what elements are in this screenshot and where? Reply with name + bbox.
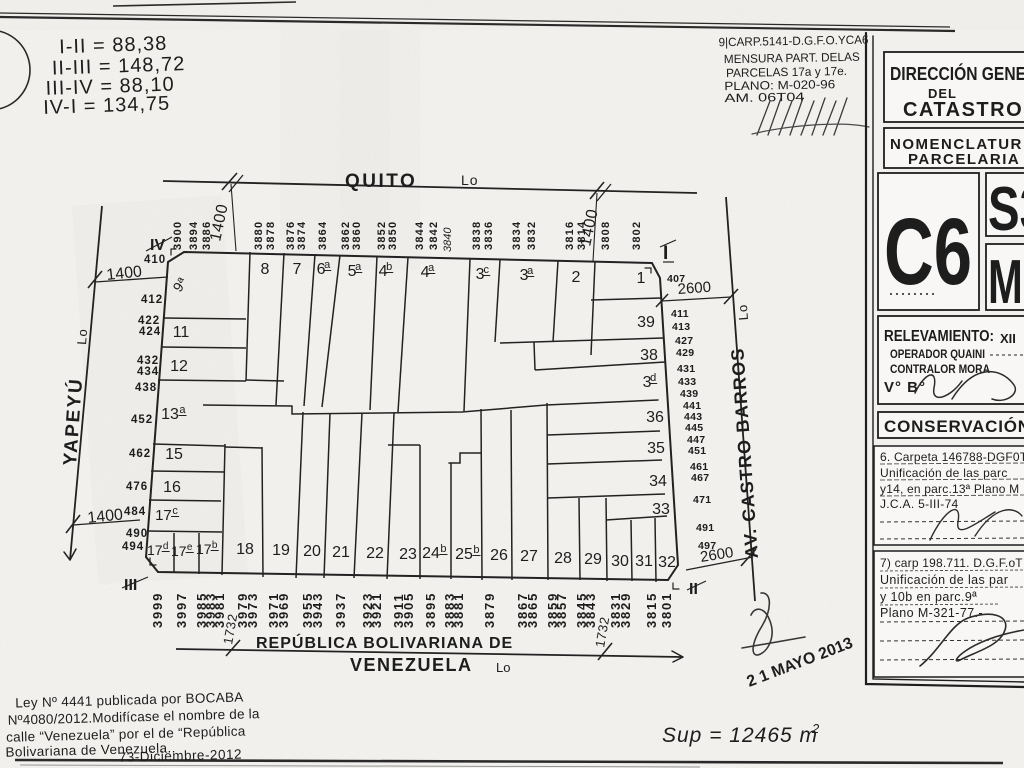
svg-text:484: 484	[124, 506, 146, 518]
svg-text:412: 412	[141, 294, 163, 306]
svg-text:433: 433	[678, 376, 696, 388]
svg-text:452: 452	[131, 414, 153, 426]
svg-text:19: 19	[272, 542, 290, 559]
svg-text:a: a	[355, 261, 362, 273]
svg-text:y 10b en parc.9ª: y 10b en parc.9ª	[880, 590, 977, 604]
svg-text:a: a	[324, 259, 331, 271]
svg-text:20: 20	[303, 543, 321, 560]
svg-text:3838: 3838	[471, 221, 483, 250]
svg-text:413: 413	[672, 321, 690, 333]
svg-text:3840: 3840	[442, 227, 454, 252]
svg-text:34: 34	[649, 473, 667, 490]
svg-text:32: 32	[658, 554, 676, 571]
svg-text:3832: 3832	[526, 221, 538, 250]
svg-text:11: 11	[173, 324, 190, 341]
svg-text:476: 476	[126, 481, 148, 493]
svg-text:23: 23	[399, 546, 417, 563]
svg-text:3808: 3808	[600, 221, 612, 250]
svg-text:9|CARP.5141-D.G.F.O.YCA6: 9|CARP.5141-D.G.F.O.YCA6	[718, 33, 869, 50]
svg-text:3937: 3937	[333, 592, 348, 628]
svg-text:3816: 3816	[564, 221, 576, 250]
svg-text:410: 410	[144, 254, 166, 266]
svg-text:C6: C6	[884, 199, 972, 305]
svg-text:3802: 3802	[631, 221, 643, 250]
svg-text:CATASTRO: CATASTRO	[903, 99, 1023, 121]
svg-text:3865: 3865	[525, 592, 540, 628]
svg-text:3895: 3895	[423, 592, 438, 628]
svg-text:424: 424	[139, 326, 161, 338]
svg-text:3834: 3834	[511, 221, 523, 250]
svg-text:17: 17	[147, 542, 163, 558]
svg-text:PARCELARIA: PARCELARIA	[908, 151, 1020, 168]
svg-text:494: 494	[122, 541, 144, 553]
svg-text:OPERADOR QUAINI: OPERADOR QUAINI	[890, 347, 985, 361]
svg-text:c: c	[172, 505, 178, 517]
svg-text:a: a	[179, 404, 186, 416]
svg-text:17: 17	[196, 541, 212, 557]
svg-text:30: 30	[611, 553, 629, 570]
svg-text:38: 38	[640, 347, 658, 364]
svg-text:3943: 3943	[310, 592, 325, 628]
svg-text:3836: 3836	[483, 221, 495, 250]
svg-text:3874: 3874	[296, 221, 308, 250]
svg-text:3999: 3999	[150, 592, 165, 628]
svg-text:451: 451	[688, 445, 706, 457]
svg-text:3969: 3969	[276, 592, 291, 628]
svg-text:Unificación de las par: Unificación de las par	[880, 573, 1008, 587]
svg-text:b: b	[386, 261, 392, 273]
svg-text:6. Carpeta 146788-DGF0T: 6. Carpeta 146788-DGF0T	[880, 450, 1024, 464]
svg-text:XII: XII	[1000, 331, 1016, 346]
svg-text:III: III	[124, 577, 137, 594]
svg-text:497: 497	[698, 540, 716, 552]
svg-text:407: 407	[667, 273, 685, 285]
svg-text:467: 467	[691, 472, 709, 484]
svg-text:3801: 3801	[659, 592, 674, 628]
svg-text:25: 25	[455, 546, 473, 563]
svg-text:429: 429	[676, 347, 694, 359]
svg-text:CONSERVACIÓN: CONSERVACIÓN	[884, 417, 1024, 436]
svg-text:a: a	[527, 265, 534, 277]
svg-text:3997: 3997	[174, 592, 189, 628]
svg-text:438: 438	[135, 382, 157, 394]
svg-text:36: 36	[646, 409, 664, 426]
svg-text:Lo: Lo	[461, 172, 479, 188]
svg-text:AM. 06T04: AM. 06T04	[724, 90, 805, 105]
svg-text:Sup = 12465 m: Sup = 12465 m	[662, 724, 818, 747]
svg-text:434: 434	[137, 366, 159, 378]
svg-text:427: 427	[675, 335, 693, 347]
svg-text:21: 21	[332, 544, 350, 561]
svg-text:Lo: Lo	[735, 303, 751, 320]
svg-text:b: b	[440, 543, 446, 555]
svg-text:29: 29	[584, 551, 602, 568]
svg-text:3829: 3829	[618, 592, 633, 628]
svg-text:12: 12	[170, 358, 188, 375]
svg-text:3973: 3973	[245, 592, 260, 628]
svg-text:3886: 3886	[201, 221, 213, 250]
svg-text:Lo: Lo	[496, 660, 510, 675]
svg-text:V° B°: V° B°	[884, 379, 926, 396]
svg-text:16: 16	[163, 479, 181, 496]
svg-text:S3: S3	[988, 175, 1024, 244]
svg-text:VENEZUELA: VENEZUELA	[350, 655, 473, 675]
svg-text:IV-I = 134,75: IV-I = 134,75	[43, 93, 171, 119]
svg-text:I: I	[663, 243, 668, 264]
svg-text:J.C.A. 5-III-74: J.C.A. 5-III-74	[880, 497, 959, 511]
svg-text:22: 22	[366, 545, 384, 562]
svg-text:RELEVAMIENTO:: RELEVAMIENTO:	[884, 328, 994, 345]
svg-text:3860: 3860	[351, 221, 363, 250]
svg-text:II: II	[689, 581, 698, 598]
svg-text:27: 27	[520, 548, 538, 565]
svg-text:490: 490	[126, 528, 148, 540]
svg-text:b: b	[473, 544, 479, 556]
svg-text:REPÚBLICA BOLIVARIANA DE: REPÚBLICA BOLIVARIANA DE	[256, 633, 513, 652]
svg-text:d: d	[163, 541, 169, 552]
svg-text:3814: 3814	[576, 221, 588, 250]
svg-text:17: 17	[171, 543, 187, 559]
svg-text:QUITO: QUITO	[345, 171, 417, 192]
svg-text:7: 7	[293, 261, 302, 278]
svg-text:d: d	[650, 372, 656, 384]
svg-text:Lo: Lo	[74, 328, 90, 345]
svg-text:3857: 3857	[554, 592, 569, 628]
svg-text:26: 26	[490, 547, 508, 564]
svg-text:39: 39	[637, 314, 655, 331]
svg-text:3981: 3981	[212, 592, 227, 628]
svg-text:462: 462	[129, 448, 151, 460]
svg-text:2: 2	[811, 721, 820, 736]
svg-text:3850: 3850	[387, 221, 399, 250]
svg-text:3921: 3921	[369, 592, 384, 628]
svg-text:33: 33	[652, 501, 670, 518]
svg-text:y14, en parc.13ª Plano M: y14, en parc.13ª Plano M	[880, 482, 1019, 496]
svg-text:3905: 3905	[401, 592, 416, 628]
svg-text:3864: 3864	[317, 221, 329, 250]
svg-text:8: 8	[261, 261, 270, 278]
svg-text:3881: 3881	[451, 592, 466, 628]
svg-text:445: 445	[685, 422, 703, 434]
svg-text:439: 439	[680, 388, 698, 400]
svg-text:471: 471	[693, 494, 711, 506]
svg-text:b: b	[212, 540, 218, 551]
svg-text:411: 411	[671, 308, 689, 320]
svg-text:3878: 3878	[265, 221, 277, 250]
svg-text:7) carp 198.711. D.G.F.oT 7: 7) carp 198.711. D.G.F.oT 7	[880, 556, 1024, 570]
svg-text:IV: IV	[150, 237, 165, 254]
svg-text:Unificación de las parc: Unificación de las parc	[880, 466, 1008, 480]
svg-text:1: 1	[637, 270, 646, 287]
svg-text:31: 31	[635, 553, 653, 570]
svg-text:3894: 3894	[188, 221, 200, 250]
svg-text:431: 431	[677, 363, 695, 375]
svg-text:3815: 3815	[644, 592, 659, 628]
svg-text:e: e	[187, 542, 193, 553]
svg-text:15: 15	[165, 446, 183, 463]
svg-text:24: 24	[422, 545, 440, 562]
svg-text:13: 13	[161, 406, 179, 423]
svg-text:CONTRALOR MORA: CONTRALOR MORA	[890, 362, 990, 376]
svg-text:3844: 3844	[414, 221, 426, 250]
svg-text:DIRECCIÓN GENE: DIRECCIÓN GENE	[890, 63, 1024, 84]
svg-text:17: 17	[155, 507, 172, 524]
svg-text:3842: 3842	[428, 221, 440, 250]
svg-text:28: 28	[554, 550, 572, 567]
svg-text:3900: 3900	[172, 221, 184, 250]
svg-text:a: a	[428, 262, 435, 274]
svg-text:3879: 3879	[482, 592, 497, 628]
svg-text:18: 18	[236, 541, 254, 558]
svg-text:c: c	[483, 264, 489, 276]
svg-text:3880: 3880	[253, 221, 265, 250]
svg-text:491: 491	[696, 522, 714, 534]
svg-text:2: 2	[572, 269, 581, 286]
svg-text:M9: M9	[988, 248, 1024, 317]
svg-text:35: 35	[647, 440, 665, 457]
svg-text:3843: 3843	[583, 592, 598, 628]
